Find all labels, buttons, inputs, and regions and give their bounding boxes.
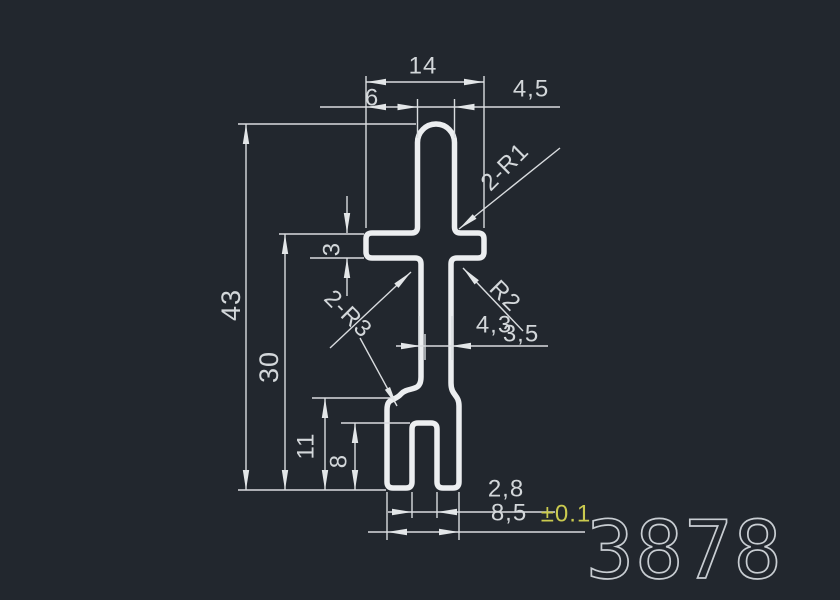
arrowhead: [463, 268, 479, 285]
dim-text-neck-width-b: 3,5: [503, 321, 539, 348]
dim-text-left-overhang: 6: [365, 85, 379, 112]
cad-canvas: 14 6 4,5 3 43 30 11 8 4,3 3,5 2,8 8,5 ±0…: [0, 0, 840, 600]
drawing-svg: 14 6 4,5 3 43 30 11 8 4,3 3,5 2,8 8,5 ±0…: [0, 0, 840, 600]
arrowhead: [401, 343, 421, 349]
dim-text-top-width: 14: [409, 53, 438, 80]
profile-outline: [366, 124, 484, 488]
arrowhead: [344, 258, 350, 278]
arrowhead: [392, 509, 412, 515]
arrowhead: [352, 423, 358, 443]
label-fillet-left: 2-R3: [319, 285, 378, 344]
arrowhead: [439, 529, 459, 535]
product-code: 3878: [586, 504, 783, 597]
arrowhead: [394, 272, 411, 288]
arrowhead: [322, 470, 328, 490]
dim-text-arm-thickness: 3: [319, 242, 346, 256]
dim-text-flare-height: 11: [293, 433, 320, 460]
arrowhead: [451, 343, 471, 349]
arrowhead: [459, 214, 477, 229]
dim-text-stem-width: 4,5: [513, 76, 549, 103]
arrowhead: [464, 79, 484, 85]
arrowhead: [455, 104, 475, 110]
arrowhead: [243, 470, 249, 490]
arrowhead: [282, 234, 288, 254]
arrowhead: [243, 124, 249, 144]
arrowhead: [437, 509, 457, 515]
extrusion-profile-path: [366, 124, 484, 488]
arrowhead: [398, 104, 418, 110]
arrowhead: [322, 398, 328, 418]
dim-text-lower-height: 30: [254, 351, 284, 383]
arrowhead: [282, 470, 288, 490]
dim-text-overall-height: 43: [216, 289, 246, 321]
leader-lines: [330, 148, 560, 406]
arrowhead: [352, 470, 358, 490]
dim-text-foot-tolerance: ±0.1: [541, 501, 592, 528]
arrowhead: [387, 529, 407, 535]
arrowhead: [344, 213, 350, 233]
dim-text-foot-width: 8,5: [491, 500, 527, 527]
dim-text-slot-depth: 8: [326, 454, 353, 468]
dim-text-slot-width: 2,8: [488, 476, 524, 503]
